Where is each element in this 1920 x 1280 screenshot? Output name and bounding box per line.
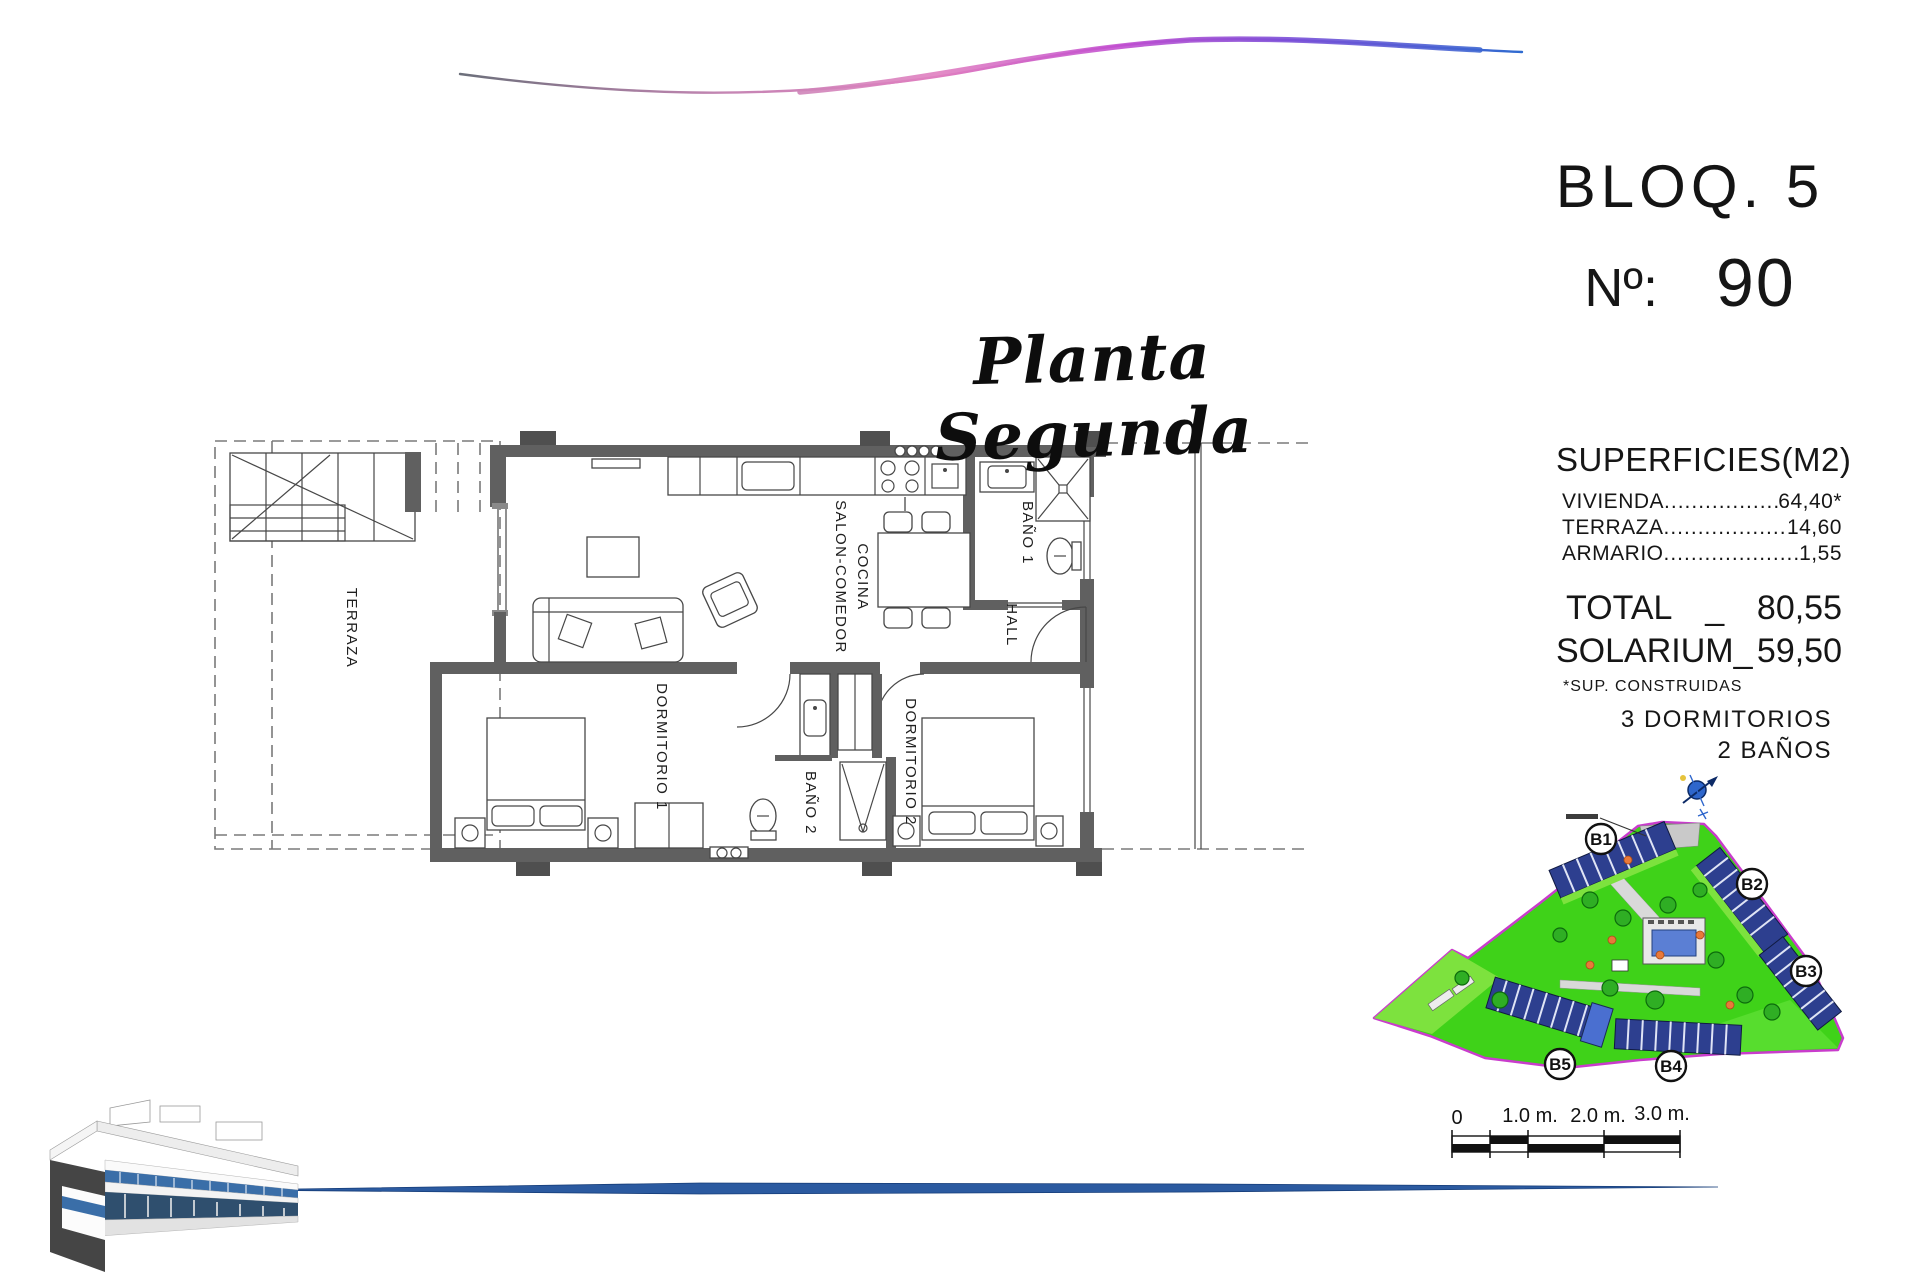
- surface-label: ARMARIO: [1562, 541, 1664, 567]
- total-label: TOTAL: [1566, 589, 1672, 628]
- surface-label: TERRAZA: [1562, 515, 1664, 541]
- unit-number-row: Nº: 90: [1538, 244, 1842, 322]
- plan-sheet: TERRAZA SALON-COMEDOR COCINA BAÑO 1 HALL…: [0, 0, 1920, 1280]
- room-label-dorm1: DORMITORIO 1: [653, 683, 670, 811]
- scale-bar: 0 1.0 m. 2.0 m. 3.0 m.: [1451, 1103, 1689, 1158]
- scale-label-0: 0: [1451, 1107, 1462, 1129]
- solarium-value: 59,50: [1757, 632, 1842, 671]
- site-block-b2: B2: [1741, 875, 1763, 894]
- room-label-bano1: BAÑO 1: [1019, 501, 1036, 565]
- unit-number-value: 90: [1716, 244, 1796, 322]
- unit-features: 3 DORMITORIOS 2 BAÑOS: [1556, 704, 1832, 766]
- room-label-bano2: BAÑO 2: [802, 771, 819, 835]
- total-value: 80,55: [1757, 589, 1842, 628]
- scale-label-1m: 1.0 m.: [1502, 1105, 1558, 1127]
- surfaces-footnote: *SUP. CONSTRUIDAS: [1563, 678, 1843, 696]
- room-label-salon: SALON-COMEDOR: [832, 500, 849, 654]
- feature-bathrooms: 2 BAÑOS: [1556, 735, 1832, 766]
- surface-solarium-row: SOLARIUM_ 59,50: [1556, 632, 1842, 671]
- surface-label: VIVIENDA: [1562, 489, 1664, 515]
- surface-row-terraza: TERRAZA ................................…: [1556, 515, 1842, 541]
- block-title: BLOQ. 5: [1538, 152, 1842, 221]
- plan-title: Planta Segunda: [826, 315, 1360, 479]
- surfaces-panel: SUPERFICIES(M2) VIVIENDA ...............…: [1556, 441, 1842, 671]
- floor-plan: TERRAZA SALON-COMEDOR COCINA BAÑO 1 HALL…: [215, 431, 1310, 876]
- total-separator: _: [1672, 589, 1756, 628]
- compass-icon: [1680, 775, 1718, 819]
- building-rendering: [50, 1100, 298, 1272]
- surface-value: 1,55: [1799, 541, 1842, 567]
- room-label-hall: HALL: [1003, 603, 1020, 647]
- surface-leader: ........................................: [1664, 515, 1787, 541]
- site-block-b5: B5: [1549, 1055, 1571, 1074]
- site-block-b4: B4: [1660, 1057, 1682, 1076]
- surface-leader: ........................................: [1664, 489, 1778, 515]
- room-label-cocina: COCINA: [854, 543, 871, 610]
- footer-rule: [230, 1183, 1718, 1194]
- surface-value: 14,60: [1787, 515, 1842, 541]
- surface-value: 64,40*: [1778, 489, 1842, 515]
- surfaces-title: SUPERFICIES(M2): [1556, 441, 1842, 479]
- room-label-terraza: TERRAZA: [343, 588, 360, 669]
- room-label-dorm2: DORMITORIO 2: [902, 698, 919, 826]
- surface-row-vivienda: VIVIENDA ...............................…: [1556, 489, 1842, 515]
- scale-label-3m: 3.0 m.: [1634, 1103, 1690, 1125]
- unit-number-label: Nº:: [1584, 257, 1658, 319]
- solarium-label: SOLARIUM_: [1556, 632, 1753, 671]
- site-plan: B1 B2 B3 B4 B5: [1374, 775, 1843, 1081]
- scale-label-2m: 2.0 m.: [1570, 1105, 1626, 1127]
- surface-row-armario: ARMARIO ................................…: [1556, 541, 1842, 567]
- site-block-b3: B3: [1795, 962, 1817, 981]
- feature-bedrooms: 3 DORMITORIOS: [1556, 704, 1832, 735]
- site-block-b1: B1: [1590, 830, 1612, 849]
- surface-total-row: TOTAL _ 80,55: [1556, 589, 1842, 628]
- wave-ornament: [460, 39, 1522, 93]
- surface-leader: ........................................: [1664, 541, 1800, 567]
